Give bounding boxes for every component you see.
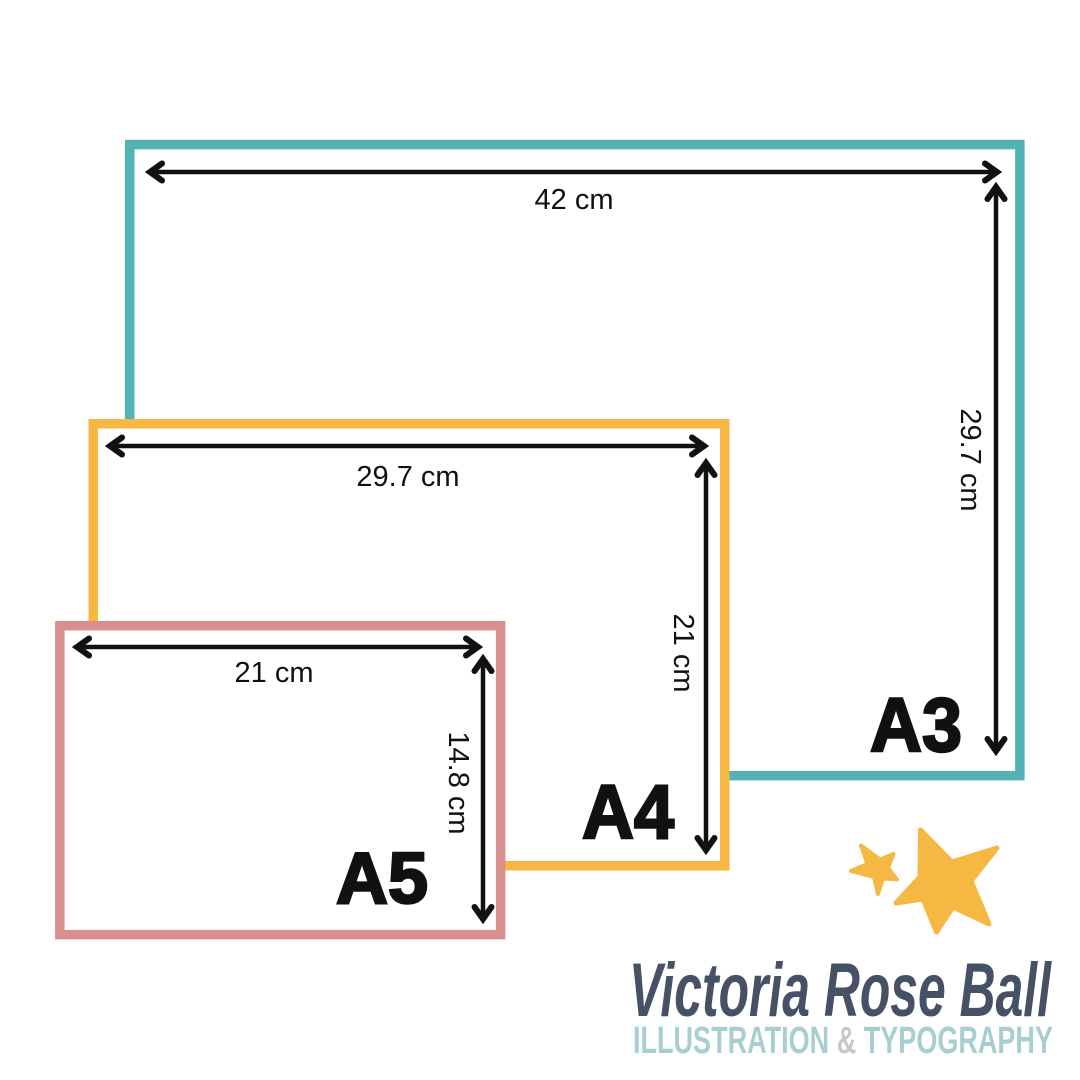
svg-text:21 cm: 21 cm bbox=[667, 614, 699, 693]
svg-text:ILLUSTRATION & TYPOGRAPHY: ILLUSTRATION & TYPOGRAPHY bbox=[633, 1020, 1053, 1062]
svg-text:A3: A3 bbox=[870, 683, 962, 768]
svg-text:A5: A5 bbox=[336, 839, 428, 919]
svg-text:29.7 cm: 29.7 cm bbox=[356, 461, 459, 493]
svg-text:21 cm: 21 cm bbox=[235, 657, 314, 689]
svg-text:A4: A4 bbox=[582, 770, 674, 855]
svg-text:29.7 cm: 29.7 cm bbox=[954, 408, 986, 511]
svg-text:14.8 cm: 14.8 cm bbox=[442, 731, 474, 834]
svg-text:42 cm: 42 cm bbox=[535, 184, 614, 216]
